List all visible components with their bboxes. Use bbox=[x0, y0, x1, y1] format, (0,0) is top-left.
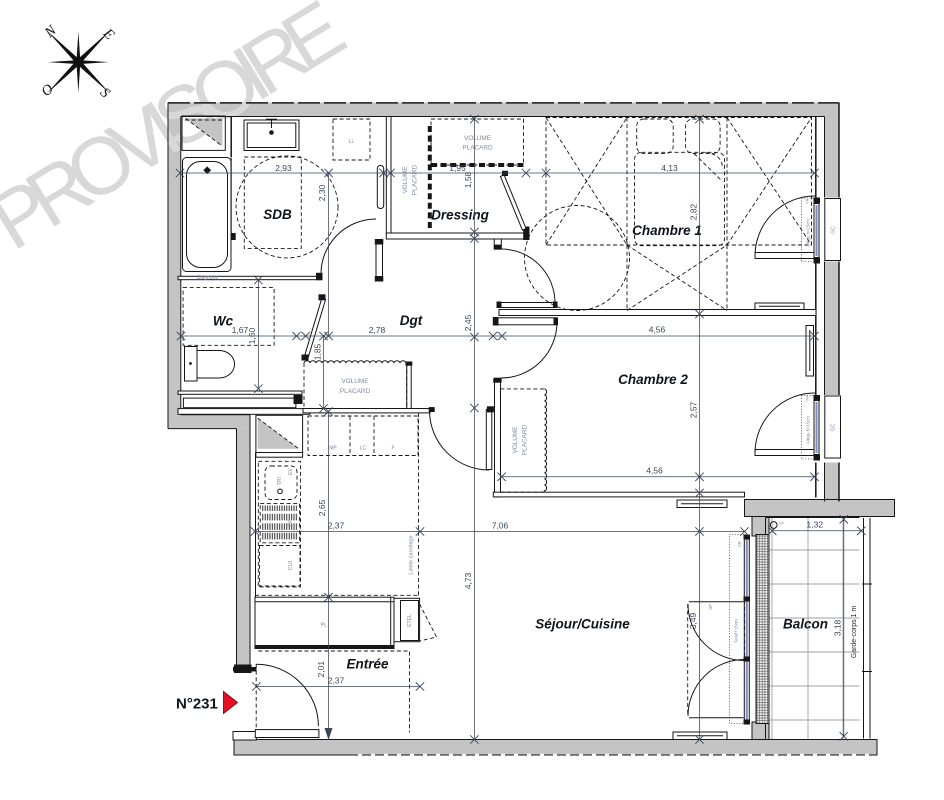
svg-text:Chambre 2: Chambre 2 bbox=[618, 372, 688, 387]
svg-text:Balcon: Balcon bbox=[783, 617, 828, 632]
svg-text:Seuil+15cm: Seuil+15cm bbox=[734, 619, 739, 643]
svg-text:MP: MP bbox=[329, 446, 337, 452]
svg-text:4,73: 4,73 bbox=[463, 572, 473, 589]
svg-text:Baignoire: Baignoire bbox=[197, 275, 218, 281]
svg-text:CUI: CUI bbox=[288, 560, 294, 570]
svg-text:TRI: TRI bbox=[277, 477, 283, 485]
svg-text:1,58: 1,58 bbox=[463, 171, 473, 188]
svg-text:VOLUME: VOLUME bbox=[464, 135, 491, 142]
svg-text:2,30: 2,30 bbox=[317, 184, 327, 201]
svg-text:GC: GC bbox=[831, 423, 837, 431]
svg-text:PL: PL bbox=[321, 623, 328, 629]
svg-text:1,95: 1,95 bbox=[449, 163, 466, 173]
svg-text:LL: LL bbox=[349, 139, 355, 145]
svg-text:2,01: 2,01 bbox=[316, 661, 326, 678]
svg-text:F: F bbox=[391, 446, 394, 452]
svg-text:4,56: 4,56 bbox=[649, 325, 666, 335]
svg-text:Wc: Wc bbox=[213, 314, 234, 329]
svg-text:Entrée: Entrée bbox=[346, 657, 389, 672]
svg-text:N°231: N°231 bbox=[176, 696, 218, 713]
svg-text:VOLUME: VOLUME bbox=[342, 378, 369, 385]
svg-text:VR: VR bbox=[805, 198, 810, 204]
svg-text:PLACARD: PLACARD bbox=[340, 388, 371, 395]
svg-text:PLACARD: PLACARD bbox=[462, 145, 493, 152]
svg-text:2,65: 2,65 bbox=[317, 499, 327, 516]
svg-text:VR: VR bbox=[805, 396, 810, 402]
svg-text:SDB: SDB bbox=[263, 207, 292, 222]
svg-text:VOLUME: VOLUME bbox=[512, 427, 519, 454]
svg-text:Allège h=15cm: Allège h=15cm bbox=[806, 416, 811, 444]
svg-text:PLACARD: PLACARD bbox=[412, 165, 419, 196]
svg-text:GC: GC bbox=[831, 226, 837, 234]
svg-text:7,06: 7,06 bbox=[492, 520, 509, 530]
svg-text:2,78: 2,78 bbox=[369, 325, 386, 335]
svg-text:VOLUME: VOLUME bbox=[402, 167, 409, 194]
svg-text:3,18: 3,18 bbox=[833, 619, 843, 636]
svg-text:OP: OP bbox=[708, 604, 713, 610]
svg-text:Chambre 1: Chambre 1 bbox=[632, 223, 702, 238]
svg-text:2,82: 2,82 bbox=[688, 203, 698, 220]
svg-text:2,93: 2,93 bbox=[275, 163, 292, 173]
svg-text:2,45: 2,45 bbox=[463, 314, 473, 331]
svg-text:1,32: 1,32 bbox=[807, 520, 824, 530]
svg-text:1,67: 1,67 bbox=[232, 325, 249, 335]
svg-text:1,60: 1,60 bbox=[247, 327, 257, 344]
svg-text:Limite carrelage: Limite carrelage bbox=[409, 535, 415, 574]
svg-text:4,13: 4,13 bbox=[661, 163, 678, 173]
svg-text:Garde-corps 1 m: Garde-corps 1 m bbox=[851, 606, 858, 659]
svg-text:PLACARD: PLACARD bbox=[522, 425, 529, 456]
svg-text:EV: EV bbox=[288, 468, 294, 475]
svg-text:2,57: 2,57 bbox=[688, 401, 698, 418]
svg-text:4,56: 4,56 bbox=[646, 466, 663, 476]
svg-text:Allège h=15cm: Allège h=15cm bbox=[806, 219, 811, 247]
svg-text:Dressing: Dressing bbox=[431, 208, 490, 223]
svg-text:VR: VR bbox=[737, 541, 742, 547]
svg-text:ETEL: ETEL bbox=[407, 614, 413, 627]
svg-text:2,37: 2,37 bbox=[328, 520, 345, 530]
svg-text:1,85: 1,85 bbox=[312, 343, 322, 360]
svg-text:Dgt: Dgt bbox=[400, 313, 423, 328]
svg-text:LC: LC bbox=[360, 446, 367, 452]
svg-text:2,37: 2,37 bbox=[328, 675, 345, 685]
svg-text:LV: LV bbox=[288, 519, 294, 525]
svg-text:3,49: 3,49 bbox=[688, 612, 698, 629]
svg-text:Séjour/Cuisine: Séjour/Cuisine bbox=[535, 617, 630, 632]
svg-text:EP: EP bbox=[779, 522, 785, 526]
